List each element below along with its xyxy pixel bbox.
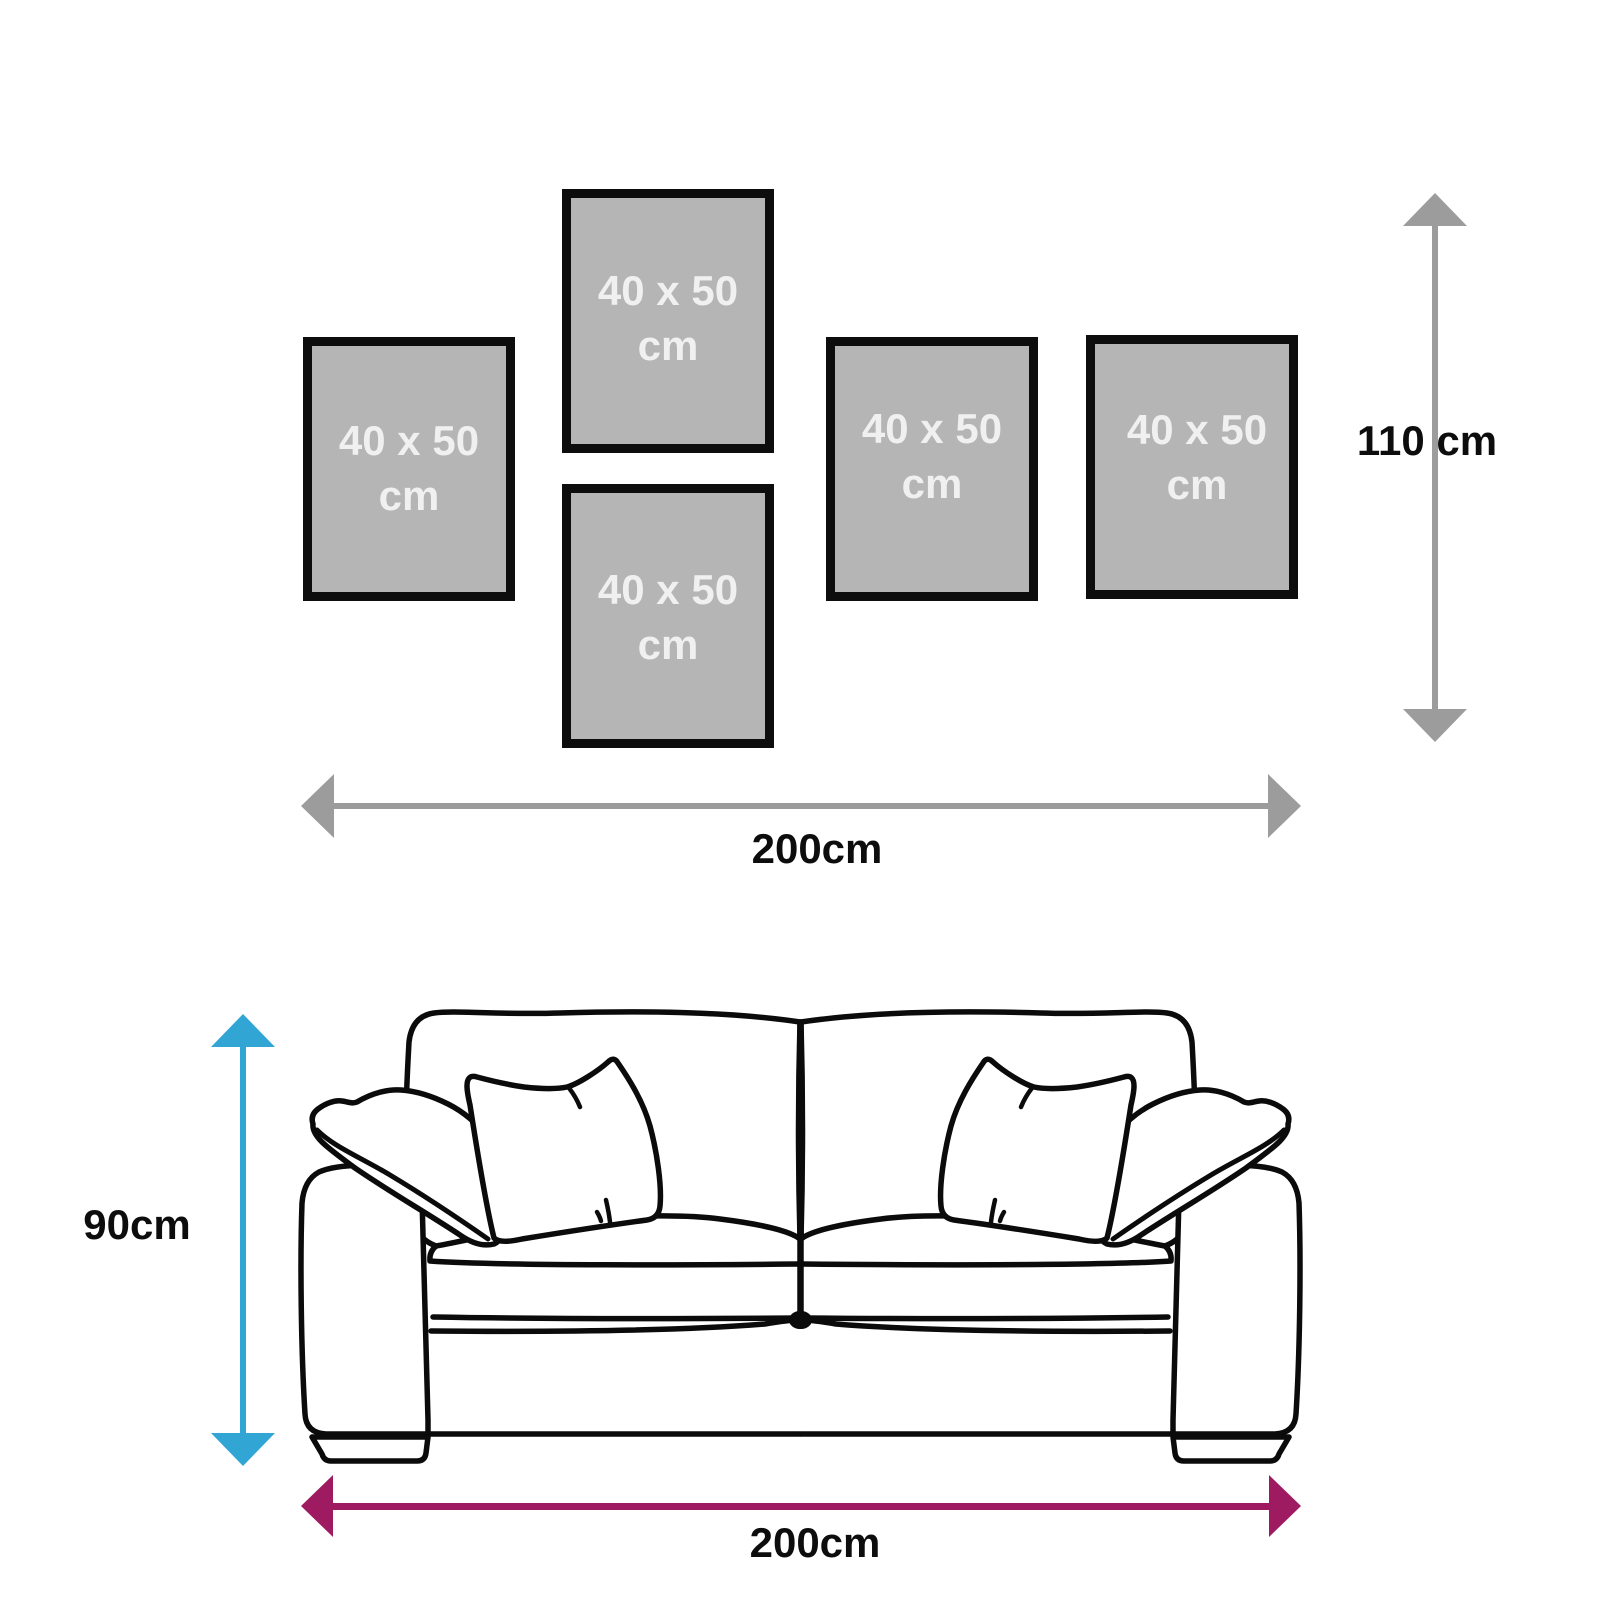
svg-text:cm: cm [1167, 461, 1228, 508]
svg-text:cm: cm [902, 460, 963, 507]
svg-text:200cm: 200cm [752, 825, 883, 872]
svg-text:200cm: 200cm [750, 1519, 881, 1566]
svg-text:cm: cm [638, 322, 699, 369]
svg-text:40 x 50: 40 x 50 [339, 417, 479, 464]
svg-text:40 x 50: 40 x 50 [862, 405, 1002, 452]
svg-text:cm: cm [638, 621, 699, 668]
svg-text:40 x 50: 40 x 50 [598, 267, 738, 314]
svg-text:110 cm: 110 cm [1357, 417, 1497, 464]
svg-text:cm: cm [379, 472, 440, 519]
svg-text:90cm: 90cm [83, 1201, 190, 1248]
svg-text:40 x 50: 40 x 50 [598, 566, 738, 613]
svg-text:40 x 50: 40 x 50 [1127, 406, 1267, 453]
